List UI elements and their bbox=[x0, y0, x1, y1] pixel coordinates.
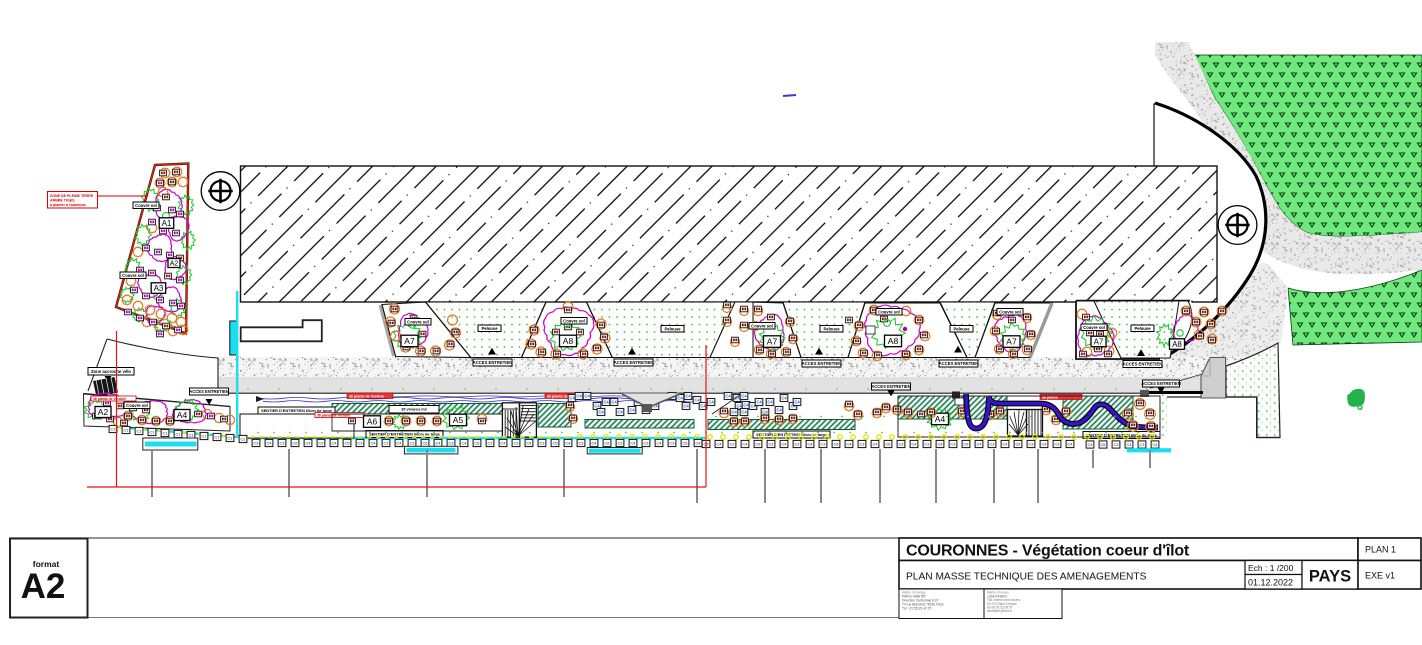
svg-text:ACCES ENTRETIEN: ACCES ENTRETIEN bbox=[802, 361, 842, 366]
svg-text:C4: C4 bbox=[743, 403, 749, 408]
svg-text:C4: C4 bbox=[708, 400, 714, 405]
svg-text:Zone accroche vélo: Zone accroche vélo bbox=[91, 369, 131, 374]
svg-text:C4: C4 bbox=[371, 441, 377, 446]
svg-text:C4: C4 bbox=[717, 442, 723, 447]
svg-text:C4: C4 bbox=[1088, 442, 1094, 447]
svg-text:landfabrik@free.fr: landfabrik@free.fr bbox=[987, 609, 1013, 613]
svg-text:PLAN 1: PLAN 1 bbox=[1365, 545, 1396, 555]
svg-text:Couvre sol: Couvre sol bbox=[751, 323, 773, 328]
svg-text:C4: C4 bbox=[566, 441, 572, 446]
svg-text:C4: C4 bbox=[741, 410, 747, 415]
svg-text:C4: C4 bbox=[592, 441, 598, 446]
svg-text:ZONE DE PLEINE TERRE: ZONE DE PLEINE TERRE bbox=[50, 194, 94, 198]
svg-text:C4: C4 bbox=[683, 404, 689, 409]
svg-text:A8: A8 bbox=[888, 336, 899, 346]
svg-text:C4: C4 bbox=[657, 441, 663, 446]
svg-text:ACCES ENTRETIEN: ACCES ENTRETIEN bbox=[473, 360, 513, 365]
svg-text:C3: C3 bbox=[990, 442, 995, 447]
svg-text:C6: C6 bbox=[475, 441, 480, 446]
svg-text:A6: A6 bbox=[367, 417, 378, 427]
svg-text:Pelouse: Pelouse bbox=[823, 326, 840, 331]
svg-text:Couvre sol: Couvre sol bbox=[126, 403, 148, 408]
svg-text:C4: C4 bbox=[677, 396, 683, 401]
svg-text:C4: C4 bbox=[569, 396, 575, 401]
svg-text:C4: C4 bbox=[696, 441, 702, 446]
svg-text:C1: C1 bbox=[176, 432, 181, 437]
svg-text:C3: C3 bbox=[254, 441, 259, 446]
svg-text:C4: C4 bbox=[767, 400, 773, 405]
svg-text:Couvre sol: Couvre sol bbox=[407, 319, 429, 324]
svg-text:C3: C3 bbox=[358, 441, 363, 446]
svg-text:C3: C3 bbox=[1055, 442, 1060, 447]
svg-text:Couvre sol: Couvre sol bbox=[878, 309, 900, 314]
svg-text:Tél : 01.55.25.42.75: Tél : 01.55.25.42.75 bbox=[902, 607, 931, 611]
svg-text:A5: A5 bbox=[453, 415, 464, 425]
svg-text:C1: C1 bbox=[189, 433, 194, 438]
svg-text:C6: C6 bbox=[683, 441, 688, 446]
svg-text:C4: C4 bbox=[685, 394, 691, 399]
svg-text:C4: C4 bbox=[731, 410, 737, 415]
svg-text:C4: C4 bbox=[781, 396, 787, 401]
svg-text:C4: C4 bbox=[741, 394, 747, 399]
svg-text:C3: C3 bbox=[410, 441, 415, 446]
svg-text:C6: C6 bbox=[886, 442, 891, 447]
svg-text:A3: A3 bbox=[154, 284, 164, 293]
svg-text:C4: C4 bbox=[938, 442, 944, 447]
svg-text:C3: C3 bbox=[795, 442, 800, 447]
svg-text:C4: C4 bbox=[782, 442, 788, 447]
svg-text:36 plants de Verdure: 36 plants de Verdure bbox=[349, 394, 384, 398]
svg-text:SENTIER D'ENTRETIEN 60cm de la: SENTIER D'ENTRETIEN 60cm de large bbox=[369, 431, 441, 436]
svg-text:C1: C1 bbox=[150, 430, 155, 435]
svg-text:C6: C6 bbox=[834, 442, 839, 447]
svg-text:Pelouse: Pelouse bbox=[1134, 326, 1151, 331]
svg-text:C4: C4 bbox=[332, 441, 338, 446]
svg-text:C6: C6 bbox=[756, 442, 761, 447]
svg-text:C6: C6 bbox=[423, 441, 428, 446]
svg-text:A2: A2 bbox=[98, 407, 109, 417]
svg-text:C3: C3 bbox=[319, 441, 324, 446]
svg-text:C4: C4 bbox=[436, 441, 442, 446]
svg-text:A8: A8 bbox=[1172, 340, 1182, 349]
svg-text:Couvre sol: Couvre sol bbox=[135, 203, 157, 208]
svg-text:35 vivaces m2: 35 vivaces m2 bbox=[401, 408, 427, 412]
svg-text:C6: C6 bbox=[964, 442, 969, 447]
svg-text:C1: C1 bbox=[241, 437, 246, 442]
svg-text:C1: C1 bbox=[163, 431, 168, 436]
svg-text:A7: A7 bbox=[1094, 337, 1104, 346]
svg-text:C3: C3 bbox=[821, 442, 826, 447]
svg-text:C3: C3 bbox=[1029, 442, 1034, 447]
svg-text:Pelouse: Pelouse bbox=[953, 326, 970, 331]
svg-text:C4: C4 bbox=[873, 442, 879, 447]
svg-text:C3: C3 bbox=[449, 441, 454, 446]
svg-text:C6: C6 bbox=[1101, 442, 1106, 447]
svg-text:C4: C4 bbox=[725, 394, 731, 399]
svg-text:EXE v1: EXE v1 bbox=[1365, 571, 1395, 581]
svg-text:COURONNES - Végétation coeur d: COURONNES - Végétation coeur d'îlot bbox=[906, 543, 1190, 560]
svg-text:Pelouse: Pelouse bbox=[481, 326, 498, 331]
svg-text:C3: C3 bbox=[925, 442, 930, 447]
svg-text:Couvre sol: Couvre sol bbox=[1083, 325, 1105, 330]
svg-text:C4: C4 bbox=[1003, 442, 1009, 447]
svg-text:36 plants de Verdure: 36 plants de Verdure bbox=[93, 397, 126, 401]
svg-text:C4: C4 bbox=[598, 410, 604, 415]
svg-text:C6: C6 bbox=[605, 441, 610, 446]
svg-text:A4: A4 bbox=[177, 410, 188, 420]
svg-text:C4: C4 bbox=[808, 442, 814, 447]
svg-text:ARBRE TIGES: ARBRE TIGES bbox=[50, 199, 75, 203]
svg-text:C4: C4 bbox=[576, 394, 582, 399]
svg-text:C3: C3 bbox=[670, 441, 675, 446]
svg-text:C3: C3 bbox=[644, 441, 649, 446]
svg-text:C4: C4 bbox=[631, 441, 637, 446]
svg-text:C3: C3 bbox=[769, 442, 774, 447]
svg-text:A2: A2 bbox=[21, 567, 66, 606]
svg-text:C3: C3 bbox=[384, 441, 389, 446]
svg-text:C3: C3 bbox=[540, 441, 545, 446]
svg-text:C4: C4 bbox=[306, 441, 312, 446]
svg-text:C6: C6 bbox=[345, 441, 350, 446]
svg-text:ACCES ENTRETIEN: ACCES ENTRETIEN bbox=[1141, 381, 1181, 386]
svg-text:A2: A2 bbox=[170, 261, 179, 268]
svg-text:C4: C4 bbox=[1068, 442, 1074, 447]
svg-text:C4: C4 bbox=[912, 442, 918, 447]
svg-text:C4: C4 bbox=[462, 441, 468, 446]
svg-text:Pelouse: Pelouse bbox=[664, 326, 681, 331]
svg-text:01.12.2022: 01.12.2022 bbox=[1248, 578, 1293, 588]
svg-text:C4: C4 bbox=[611, 400, 617, 405]
svg-text:C4: C4 bbox=[794, 400, 800, 405]
svg-text:C3: C3 bbox=[951, 442, 956, 447]
svg-text:C4: C4 bbox=[776, 408, 782, 413]
svg-text:C3: C3 bbox=[488, 441, 493, 446]
svg-text:C3: C3 bbox=[579, 441, 584, 446]
svg-text:PLAN MASSE TECHNIQUE DES AMENA: PLAN MASSE TECHNIQUE DES AMENAGEMENTS bbox=[906, 572, 1147, 583]
svg-text:C3: C3 bbox=[514, 441, 519, 446]
svg-text:C4: C4 bbox=[1127, 442, 1133, 447]
svg-text:A1: A1 bbox=[162, 219, 172, 228]
svg-text:C4: C4 bbox=[584, 394, 590, 399]
svg-text:A8: A8 bbox=[563, 336, 574, 346]
svg-text:C4: C4 bbox=[1042, 442, 1048, 447]
svg-text:C4: C4 bbox=[501, 441, 507, 446]
svg-text:C4: C4 bbox=[756, 400, 762, 405]
svg-text:C1: C1 bbox=[215, 435, 220, 440]
svg-text:Couvre sol: Couvre sol bbox=[563, 318, 585, 323]
svg-text:C4: C4 bbox=[397, 441, 403, 446]
svg-text:C6: C6 bbox=[553, 441, 558, 446]
svg-text:ACCES ENTRETIEN: ACCES ENTRETIEN bbox=[939, 361, 979, 366]
svg-text:A7: A7 bbox=[1006, 337, 1017, 347]
svg-text:Couvre sol: Couvre sol bbox=[999, 309, 1021, 314]
svg-text:C3: C3 bbox=[1140, 442, 1145, 447]
svg-text:C4: C4 bbox=[629, 408, 635, 413]
svg-text:A7: A7 bbox=[404, 336, 415, 346]
svg-text:C3: C3 bbox=[899, 442, 904, 447]
svg-text:C3: C3 bbox=[618, 441, 623, 446]
svg-text:Couvre sol: Couvre sol bbox=[122, 273, 144, 278]
svg-text:Ech : 1 /200: Ech : 1 /200 bbox=[1248, 563, 1294, 573]
svg-text:C3: C3 bbox=[280, 441, 285, 446]
svg-text:C4: C4 bbox=[527, 441, 533, 446]
svg-text:C1: C1 bbox=[228, 436, 233, 441]
svg-text:C4: C4 bbox=[603, 400, 609, 405]
svg-text:C4: C4 bbox=[847, 442, 853, 447]
svg-text:ACCES ENTRETIEN: ACCES ENTRETIEN bbox=[871, 384, 911, 389]
svg-text:A7: A7 bbox=[767, 337, 778, 347]
svg-text:C4: C4 bbox=[977, 442, 983, 447]
svg-text:C3: C3 bbox=[730, 442, 735, 447]
svg-text:C4: C4 bbox=[267, 441, 273, 446]
svg-text:A4: A4 bbox=[935, 414, 946, 424]
svg-text:C6: C6 bbox=[1016, 442, 1021, 447]
svg-text:PAYS: PAYS bbox=[1309, 568, 1351, 586]
svg-text:C4: C4 bbox=[1153, 442, 1159, 447]
svg-text:C1: C1 bbox=[137, 429, 142, 434]
svg-text:C4: C4 bbox=[743, 442, 749, 447]
svg-text:C1: C1 bbox=[124, 428, 129, 433]
svg-text:ACCES ENTRETIEN: ACCES ENTRETIEN bbox=[614, 360, 654, 365]
svg-text:C6: C6 bbox=[293, 441, 298, 446]
svg-text:C4: C4 bbox=[617, 410, 623, 415]
svg-text:ACCES ENTRETIEN: ACCES ENTRETIEN bbox=[189, 389, 229, 394]
svg-text:ACCES ENTRETIEN: ACCES ENTRETIEN bbox=[1123, 362, 1163, 367]
svg-text:C3: C3 bbox=[860, 442, 865, 447]
svg-text:C1: C1 bbox=[202, 434, 207, 439]
svg-text:à planter à l'automne: à planter à l'automne bbox=[50, 203, 86, 207]
svg-text:C3: C3 bbox=[1114, 442, 1119, 447]
svg-text:SENTIER D'ENTRETIEN 60cm de la: SENTIER D'ENTRETIEN 60cm de large bbox=[756, 432, 828, 437]
svg-text:C1: C1 bbox=[111, 427, 116, 432]
